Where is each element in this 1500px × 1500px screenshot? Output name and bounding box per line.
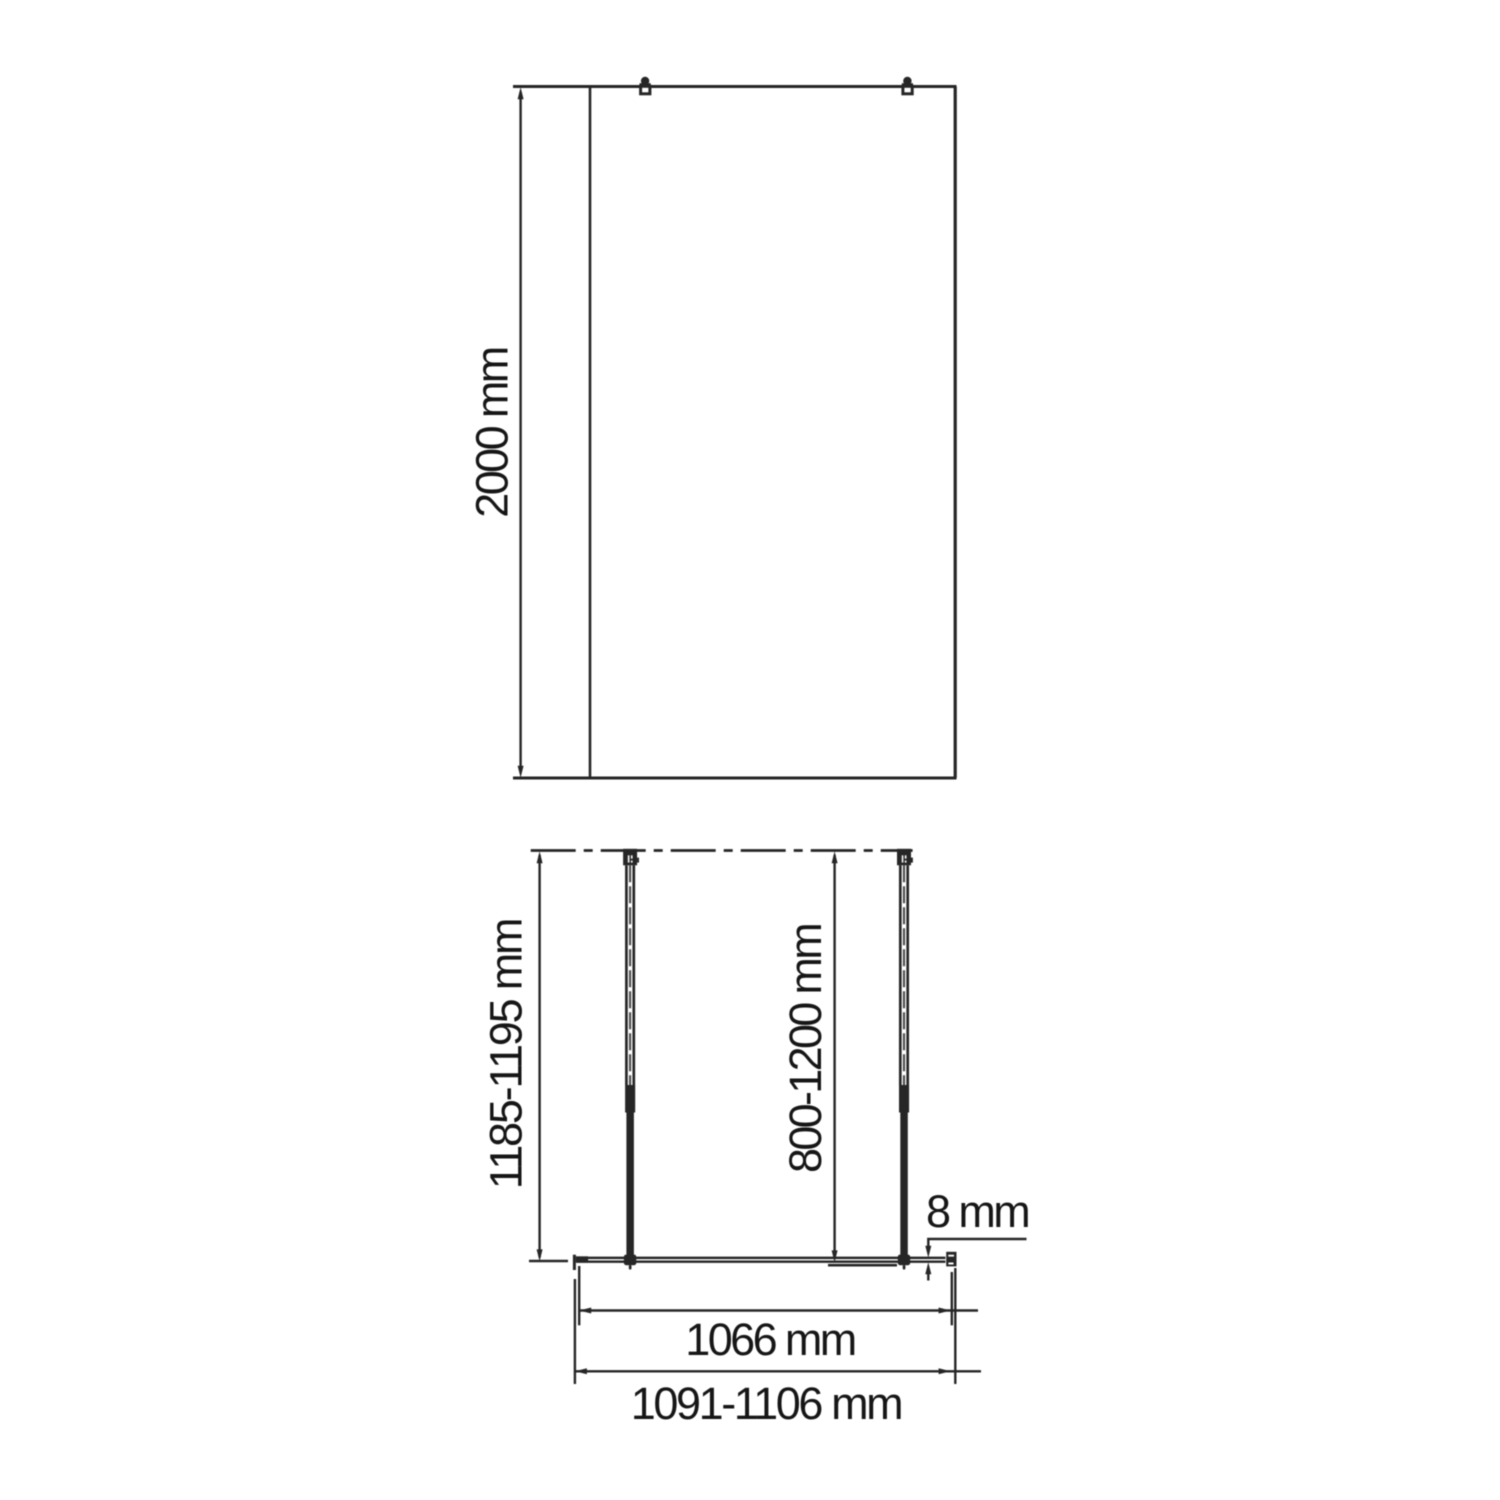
svg-text:2000 mm: 2000 mm — [467, 348, 518, 517]
svg-text:1185-1195 mm: 1185-1195 mm — [481, 920, 532, 1190]
svg-text:800-1200 mm: 800-1200 mm — [780, 925, 831, 1173]
svg-text:8 mm: 8 mm — [926, 1186, 1028, 1237]
svg-text:1091-1106 mm: 1091-1106 mm — [631, 1378, 902, 1429]
svg-text:1066 mm: 1066 mm — [685, 1314, 854, 1365]
